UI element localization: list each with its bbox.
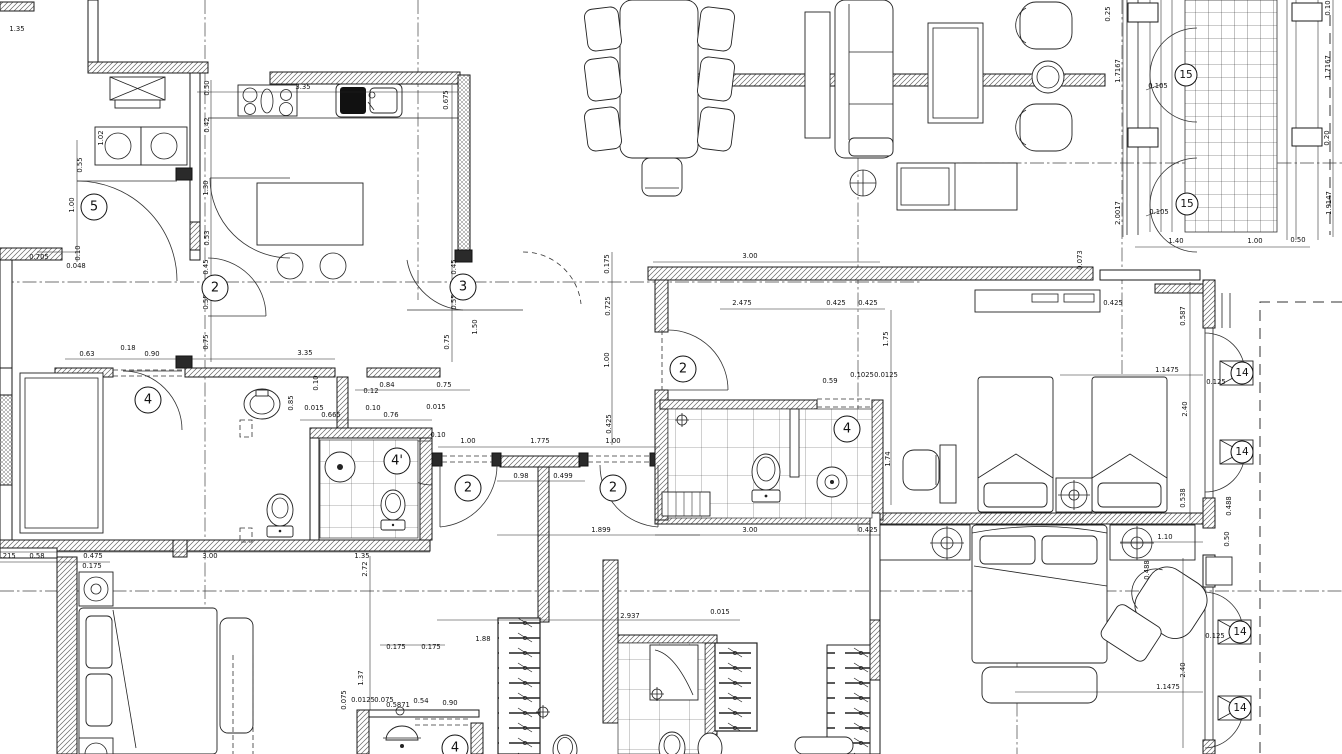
room-label-15: 15 (1176, 193, 1198, 215)
desk-chair (903, 445, 956, 503)
dimension-label: 0.0125 (874, 371, 898, 379)
dimension-label: 0.59 (822, 377, 837, 385)
floor-plan-drawing: 1.350.7050.0483.350.630.180.903.350.840.… (0, 0, 1342, 754)
dimension-label: 0.50 (1290, 236, 1305, 244)
room-label-2: 2 (600, 475, 626, 501)
svg-text:14: 14 (1235, 446, 1249, 458)
room-label-5: 5 (81, 194, 107, 220)
room-label-14: 14 (1231, 362, 1253, 384)
svg-text:4: 4 (144, 393, 152, 408)
dimension-label: 0.50 (1223, 531, 1231, 546)
dimension-label: 0.12 (363, 387, 378, 395)
svg-text:14: 14 (1233, 626, 1247, 638)
terrace-mullion (1128, 3, 1158, 22)
dresser (880, 525, 970, 560)
dimension-label: 0.10 (1324, 0, 1332, 15)
terrace-column (1292, 128, 1322, 146)
svg-text:2: 2 (609, 481, 617, 496)
bed-single (1092, 377, 1167, 512)
dimension-label: 0.45 (202, 259, 210, 274)
svg-text:2: 2 (211, 281, 219, 296)
nightstand (1110, 525, 1195, 560)
svg-text:5: 5 (90, 200, 98, 215)
dimension-label: 1.35 (9, 25, 24, 33)
dimension-label: 0.54 (413, 697, 428, 705)
twin-bedroom (903, 290, 1167, 512)
terrace-tile-floor (1185, 0, 1277, 232)
dimension-label: 2.475 (732, 299, 751, 307)
shower (650, 645, 698, 701)
tv-sideboard (928, 23, 983, 123)
dimension-label: 0.705 (29, 253, 48, 261)
bathtub (795, 737, 853, 754)
room-label-14: 14 (1229, 621, 1251, 643)
living-room (805, 0, 1072, 210)
dimension-label: 0.25 (1104, 6, 1112, 21)
dimension-label: 0.073 (1076, 250, 1084, 269)
kitchen-sink (336, 84, 402, 117)
closet-hangers (498, 618, 540, 754)
dimension-label: 3.00 (742, 526, 757, 534)
master-bedroom (827, 525, 1215, 754)
room-label-2: 2 (202, 275, 228, 301)
bench (220, 618, 253, 733)
dimension-label: 0.84 (379, 381, 394, 389)
dimension-label: 0.125 (1205, 632, 1224, 640)
dimension-label: 0.175 (386, 643, 405, 651)
dimension-label: 3.35 (297, 349, 312, 357)
terrace-column (1292, 3, 1322, 21)
dimension-label: 1.00 (1247, 237, 1262, 245)
dimension-label: 0.20 (1323, 130, 1331, 145)
door-room-2-right (662, 330, 728, 390)
dimension-label: 0.55 (76, 157, 84, 172)
dryer (141, 127, 187, 165)
dimension-label: 1.35 (354, 552, 369, 560)
bed-double (972, 525, 1107, 663)
dimension-label: 1.74 (884, 451, 892, 466)
room-label-15: 15 (1175, 64, 1197, 86)
dimension-label: 0.425 (858, 526, 877, 534)
bench (982, 667, 1097, 703)
svg-text:2: 2 (679, 362, 687, 377)
svg-text:15: 15 (1179, 69, 1192, 81)
nightstand (79, 572, 113, 606)
dimension-label: 0.75 (443, 334, 451, 349)
terrace-mullion (1128, 128, 1158, 147)
toilet (752, 454, 780, 502)
dimension-label: 0.10 (365, 404, 380, 412)
washbasin (244, 389, 280, 419)
shower-tray (662, 492, 710, 516)
dimension-label: 0.175 (421, 643, 440, 651)
floor-plan-canvas: 1.350.7050.0483.350.630.180.903.350.840.… (0, 0, 1342, 754)
dimension-label: 0.015 (426, 403, 445, 411)
room-label-2: 2 (455, 475, 481, 501)
dining (584, 0, 736, 196)
dimension-label: 1.7167 (1324, 55, 1332, 79)
dimension-label: 0.425 (826, 299, 845, 307)
closet-hangers (715, 643, 757, 731)
armchair (1016, 2, 1072, 49)
floor-lamp (850, 170, 876, 196)
dimension-label: 0.5871 (386, 701, 410, 709)
svg-text:2: 2 (464, 481, 472, 496)
toilet (267, 494, 293, 537)
dimension-label: 0.538 (1179, 488, 1187, 507)
armchair-rotated (1098, 553, 1214, 676)
partition (790, 409, 799, 477)
dimension-label: 0.98 (513, 472, 528, 480)
dimension-label: 2.72 (361, 561, 369, 576)
armchair (1016, 104, 1072, 151)
dimension-label: 0.475 (83, 552, 102, 560)
dimension-label: 1.50 (471, 319, 479, 334)
dimension-label: 0.85 (287, 395, 295, 410)
dimension-label: 0.725 (604, 296, 612, 315)
dimension-label: 1.1475 (1156, 683, 1180, 691)
dining-table (620, 0, 698, 158)
nightstand (1056, 478, 1092, 512)
dimension-label: 0.53 (203, 230, 211, 245)
dimension-label: 1.00 (460, 437, 475, 445)
dimension-label: 0.75 (202, 334, 210, 349)
dimension-label: 0.0125 (351, 696, 375, 704)
room-label-4: 4 (135, 387, 161, 413)
svg-text:4': 4' (391, 454, 403, 469)
dimension-label: 0.425 (605, 414, 613, 433)
dimension-label: 0.50 (203, 80, 211, 95)
dimension-label: 3.35 (295, 83, 310, 91)
svg-text:14: 14 (1233, 702, 1247, 714)
dimension-label: 0.105 (1148, 82, 1167, 90)
dimension-label: 2.40 (1181, 401, 1189, 416)
svg-text:4: 4 (451, 741, 459, 754)
dimension-label: 0.42 (203, 117, 211, 132)
dimension-label: 2.40 (1179, 662, 1187, 677)
svg-text:3: 3 (459, 280, 467, 295)
room-label-2: 2 (670, 356, 696, 382)
dimension-label: 2.937 (620, 612, 639, 620)
dimension-label: 0.175 (603, 254, 611, 273)
dimension-label: 1.1475 (1155, 366, 1179, 374)
room-label-4b: 4' (384, 448, 410, 474)
dimension-label: 1.9147 (1325, 191, 1333, 215)
dimension-label: 0.10 (74, 245, 82, 260)
svg-text:4: 4 (843, 422, 851, 437)
dimension-label: 0.425 (1103, 299, 1122, 307)
room-label-4: 4 (442, 735, 468, 754)
dimension-label: 1.00 (603, 352, 611, 367)
dimension-label: 1.899 (591, 526, 610, 534)
toilet (553, 735, 577, 754)
bed-single (978, 377, 1053, 512)
room-label-4: 4 (834, 416, 860, 442)
dimension-label: 1.00 (68, 197, 76, 212)
toilet (381, 490, 405, 530)
dimension-label: 1.775 (530, 437, 549, 445)
dimension-label: 1.10 (1157, 533, 1172, 541)
dimension-label: 0.1025 (850, 371, 874, 379)
dimension-label: 2.0017 (1114, 201, 1122, 225)
dimension-label: 0.90 (442, 699, 457, 707)
dimension-label: 0.425 (858, 299, 877, 307)
kitchen-island (257, 183, 363, 245)
svg-text:15: 15 (1180, 198, 1193, 210)
dimension-label: 0.015 (710, 608, 729, 616)
dimension-label: 0.587 (1179, 306, 1187, 325)
dimension-label: 0.488 (1143, 560, 1151, 579)
door-kitchen-3 (407, 252, 581, 310)
stool (320, 253, 346, 279)
dimension-label: 1.30 (202, 180, 210, 195)
dimension-label: 0.125 (1206, 378, 1225, 386)
dimension-label: 0.10 (430, 431, 445, 439)
dimension-label: 0.58 (29, 552, 44, 560)
coffee-table (897, 163, 1017, 210)
dimension-label: 1.75 (882, 331, 890, 346)
dimension-label: 0.105 (1149, 208, 1168, 216)
dimension-label: 0.675 (442, 90, 450, 109)
dimension-label: 0.63 (79, 350, 94, 358)
stool (277, 253, 303, 279)
dimension-label: 1.88 (475, 635, 490, 643)
dimension-label: 0.488 (1225, 496, 1233, 515)
dimension-label: 0.048 (66, 262, 85, 270)
dimension-label: 0.75 (436, 381, 451, 389)
dimension-label: 0.175 (82, 562, 101, 570)
console-table (805, 12, 830, 138)
dimension-label: 0.665 (321, 411, 340, 419)
dimension-label: 1.00 (605, 437, 620, 445)
dimension-label: 1.02 (97, 130, 105, 145)
room-label-3: 3 (450, 274, 476, 300)
dimension-label: 0.18 (120, 344, 135, 352)
dimension-label: 1.40 (1168, 237, 1183, 245)
dimension-label: 0.10 (312, 375, 320, 390)
dimension-label: 0.499 (553, 472, 572, 480)
wardrobe (20, 373, 103, 533)
dimension-label: 1.7167 (1114, 59, 1122, 83)
bed-double (79, 608, 217, 754)
dimension-label: 3.00 (202, 552, 217, 560)
dimension-label: 0.075 (340, 690, 348, 709)
dimension-label: 1.37 (357, 670, 365, 685)
dimension-label: 0.45 (450, 259, 458, 274)
svg-text:14: 14 (1235, 367, 1249, 379)
shelf (975, 290, 1100, 312)
left-bedroom (79, 572, 253, 754)
dimension-label: 3.00 (742, 252, 757, 260)
room-label-14: 14 (1231, 441, 1253, 463)
stove (238, 85, 297, 116)
dimension-label: 0.76 (383, 411, 398, 419)
sofa (835, 0, 893, 158)
dimension-label: 0.215 (0, 552, 16, 560)
dimension-label: 0.90 (144, 350, 159, 358)
nightstand (79, 738, 113, 754)
room-label-14: 14 (1229, 697, 1251, 719)
